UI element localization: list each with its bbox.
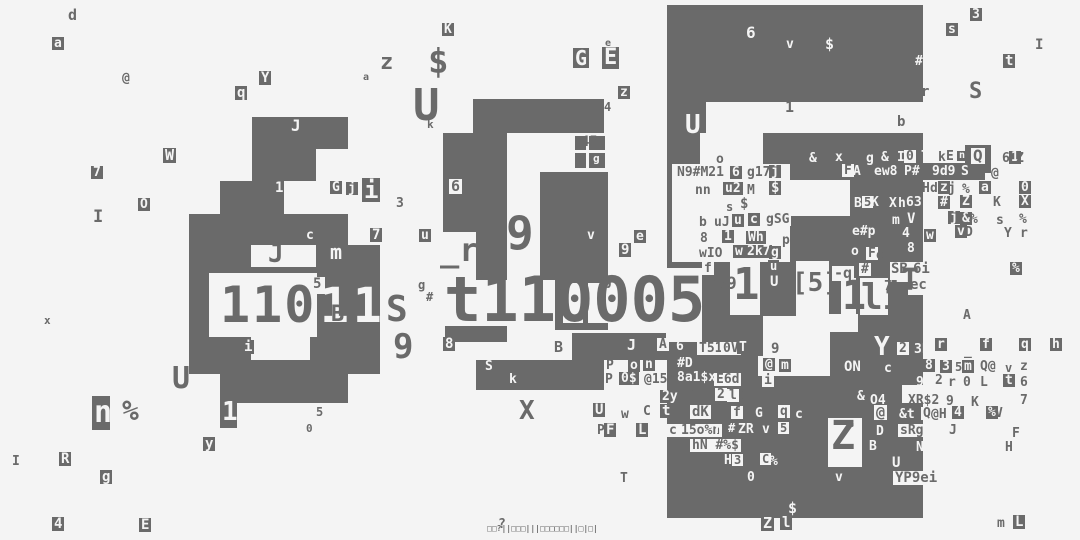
noise-char: c: [884, 362, 892, 375]
noise-char: 0: [747, 471, 755, 484]
noise-block: [572, 333, 667, 360]
noise-char: r: [935, 338, 947, 351]
noise-char: 7: [1020, 394, 1028, 407]
noise-char: 3E: [914, 343, 930, 356]
noise-char: k: [938, 151, 946, 164]
noise-char: 1: [733, 263, 760, 307]
noise-char: 8: [907, 242, 915, 255]
noise-char: @: [874, 405, 887, 420]
noise-char: h: [1050, 338, 1062, 351]
noise-char: z: [618, 86, 630, 99]
noise-char: J: [268, 241, 284, 267]
noise-char: O: [138, 198, 150, 211]
noise-char: w: [924, 229, 936, 242]
noise-char: 4M: [930, 425, 946, 438]
noise-char: K: [971, 396, 979, 409]
noise-char: e: [634, 230, 646, 243]
noise-char: L: [636, 423, 648, 437]
noise-art-canvas: da@YqW7OIxJ1Gji3za$KUkeGEz4Jcm7u110115BS…: [0, 0, 1080, 540]
noise-char: L: [1013, 515, 1025, 529]
noise-char: li: [861, 280, 904, 316]
noise-char: s: [996, 214, 1004, 227]
noise-char: W: [163, 148, 176, 163]
noise-char: Q@: [980, 360, 996, 373]
noise-char: N: [916, 441, 924, 454]
noise-char: E6d: [714, 373, 741, 386]
noise-char: F: [604, 423, 616, 437]
noise-char: x: [44, 315, 51, 326]
noise-char: J: [627, 338, 636, 353]
noise-char: F: [1012, 427, 1020, 440]
noise-char: K: [871, 196, 879, 209]
noise-char: l: [780, 516, 792, 530]
noise-char: _r: [440, 234, 479, 266]
noise-char: I: [93, 209, 103, 226]
noise-char: 6: [676, 340, 684, 353]
noise-char: y: [203, 437, 215, 451]
noise-char: 0: [306, 423, 313, 434]
noise-char: 1: [222, 399, 238, 425]
noise-char: %: [770, 455, 778, 468]
noise-char: v: [786, 38, 794, 51]
noise-char: C: [643, 405, 651, 418]
noise-char: t: [1003, 54, 1015, 68]
noise-char: J: [947, 424, 959, 437]
noise-char: j: [948, 211, 960, 224]
noise-char: @: [122, 72, 130, 85]
noise-char: ON: [844, 360, 861, 374]
noise-char: Z: [1016, 152, 1024, 165]
noise-char: i: [762, 374, 774, 387]
noise-char: g: [100, 470, 112, 484]
noise-char: g: [593, 153, 600, 164]
noise-char: h: [898, 197, 906, 210]
noise-char: v: [835, 471, 843, 484]
noise-char: 4: [604, 101, 611, 113]
noise-char: &: [809, 152, 817, 165]
noise-char: 9: [916, 376, 924, 389]
noise-char: j: [346, 182, 358, 195]
noise-char: K: [993, 196, 1001, 209]
noise-char: t110005: [444, 269, 705, 331]
noise-char: %: [122, 397, 139, 425]
noise-block: [252, 149, 316, 181]
noise-char: c: [667, 424, 679, 437]
noise-char: v: [762, 423, 770, 436]
noise-char: 0: [1019, 181, 1031, 194]
noise-char: S: [386, 292, 408, 328]
noise-char: a: [363, 73, 369, 83]
noise-char: 110: [220, 280, 316, 330]
noise-char: b: [897, 115, 905, 129]
noise-char: Z: [960, 195, 972, 208]
noise-char: 45: [581, 135, 598, 149]
noise-char: @15A: [644, 373, 675, 386]
noise-char: 4: [52, 517, 64, 531]
noise-char: g: [418, 279, 425, 291]
noise-char: 5: [316, 406, 323, 418]
noise-char: Wh: [746, 231, 766, 244]
noise-char: 5: [778, 422, 789, 434]
noise-block: [220, 374, 348, 403]
noise-char: #: [915, 55, 923, 68]
noise-char: 0: [904, 150, 916, 163]
noise-block: [189, 273, 209, 337]
noise-char: nn: [695, 184, 711, 197]
noise-char: t: [1003, 374, 1015, 387]
noise-char: g17: [747, 166, 770, 179]
noise-char: 9: [393, 330, 413, 364]
noise-char: u: [419, 229, 431, 242]
noise-char: #: [726, 422, 737, 434]
noise-block: [251, 360, 312, 374]
noise-char: r: [1020, 227, 1028, 240]
noise-cutout: [706, 102, 923, 133]
noise-char: 2: [933, 374, 945, 387]
noise-block: [575, 153, 586, 168]
noise-char: Q: [971, 148, 985, 164]
noise-char: 6: [1020, 376, 1028, 389]
noise-char: l: [727, 389, 739, 402]
noise-char: i: [242, 340, 254, 354]
noise-char: 1: [785, 100, 794, 115]
noise-char: n: [643, 358, 655, 371]
noise-char: H: [724, 454, 732, 467]
noise-char: A: [657, 338, 669, 351]
noise-char: 1: [722, 230, 734, 243]
noise-char: v: [1005, 362, 1012, 374]
noise-char: U: [892, 456, 900, 470]
noise-char: m: [330, 242, 342, 262]
noise-char: m: [892, 214, 900, 227]
noise-char: S: [961, 165, 969, 178]
noise-char: $: [428, 45, 448, 79]
noise-char: @: [991, 167, 999, 180]
noise-cutout: [251, 337, 310, 360]
noise-char: 8a1$x: [675, 371, 718, 384]
noise-char: m: [779, 359, 791, 372]
noise-char: 5: [313, 277, 321, 291]
noise-char: r: [921, 85, 929, 99]
noise-char: E: [139, 518, 151, 532]
noise-char: M: [747, 184, 755, 197]
noise-char: wIO: [699, 247, 722, 260]
noise-char: I: [741, 390, 749, 403]
noise-char: a: [979, 181, 991, 194]
noise-char: T: [921, 150, 929, 163]
noise-char: U: [770, 275, 778, 289]
noise-char: I: [1035, 38, 1043, 52]
noise-char: G: [848, 420, 854, 430]
noise-char: 7: [91, 166, 103, 179]
noise-char: 4: [902, 227, 910, 240]
noise-char: A: [963, 309, 971, 322]
noise-char: YP9ei: [893, 471, 939, 485]
noise-char: f: [731, 406, 743, 419]
noise-char: N9#M21: [677, 166, 724, 179]
noise-char: #: [426, 291, 433, 303]
noise-block: [476, 360, 604, 390]
noise-block: [473, 99, 604, 133]
noise-char: c: [795, 408, 803, 421]
noise-char: g: [866, 152, 874, 165]
noise-char: ec: [910, 278, 927, 292]
noise-char: 6: [449, 179, 462, 194]
noise-char: $: [825, 37, 834, 52]
noise-char: j: [948, 182, 956, 195]
noise-char: t: [660, 404, 672, 418]
noise-char: U: [172, 364, 190, 394]
noise-char: #: [938, 196, 950, 209]
noise-char: A: [853, 165, 861, 178]
noise-char: Y: [874, 334, 890, 360]
noise-char: E: [946, 150, 954, 163]
noise-char: 6: [730, 166, 742, 179]
noise-block: [360, 360, 379, 373]
noise-char: o: [851, 245, 859, 258]
noise-char: e#p: [852, 225, 875, 238]
noise-char: s: [946, 23, 958, 36]
noise-char: Y: [259, 71, 271, 85]
noise-char: #D: [675, 357, 695, 370]
noise-char: 2: [715, 388, 727, 401]
noise-char: J: [291, 118, 301, 134]
noise-char: n: [957, 151, 967, 161]
noise-char: 4: [952, 406, 964, 419]
noise-char: &t: [899, 408, 915, 421]
noise-char: d: [68, 8, 77, 23]
noise-char: G: [573, 48, 589, 68]
noise-char: W: [840, 197, 848, 210]
noise-char: K: [442, 23, 454, 36]
noise-char: D: [965, 226, 973, 239]
noise-char: 0$: [619, 372, 639, 385]
noise-char: 3: [970, 8, 982, 21]
noise-char: 7: [370, 228, 382, 242]
noise-char: 2: [897, 342, 909, 355]
noise-char: $: [740, 197, 748, 211]
noise-char: B: [854, 197, 862, 210]
noise-char: q: [235, 86, 247, 100]
noise-char: X: [519, 398, 535, 424]
noise-char: 9: [619, 243, 631, 257]
noise-char: o: [876, 249, 884, 262]
noise-char: 63: [906, 196, 922, 209]
noise-char: T: [737, 341, 749, 354]
noise-char: m: [962, 360, 974, 373]
noise-char: 9: [771, 342, 779, 356]
noise-char: ?: [498, 518, 506, 531]
noise-char: ew8: [874, 165, 897, 178]
noise-char: B: [554, 340, 563, 355]
noise-char: 8: [443, 337, 455, 351]
noise-char: _: [964, 345, 972, 358]
noise-char: x: [835, 151, 843, 164]
noise-char: ZR: [738, 423, 754, 436]
noise-char: B: [331, 304, 344, 326]
noise-char: 1: [275, 181, 283, 195]
noise-char: v: [585, 229, 597, 242]
noise-char: L: [980, 376, 988, 389]
noise-char: P#: [904, 165, 920, 178]
noise-char: m: [997, 517, 1005, 530]
noise-char: 3: [396, 197, 404, 210]
noise-char: k: [509, 373, 517, 386]
noise-char: 2y: [660, 390, 680, 403]
noise-char: u: [732, 214, 744, 227]
noise-char: w: [621, 408, 629, 421]
noise-char: %: [1019, 213, 1027, 226]
noise-char: f: [980, 338, 992, 351]
noise-char: $: [769, 181, 781, 195]
noise-char: u: [768, 260, 779, 272]
noise-char: P: [605, 373, 613, 386]
noise-char: Z: [761, 516, 774, 531]
noise-char: 8: [923, 359, 935, 372]
noise-char: 6: [746, 25, 756, 41]
noise-char: 9d9: [932, 165, 955, 178]
noise-char: D: [876, 425, 884, 438]
noise-char: dK: [690, 405, 711, 419]
noise-char: g: [769, 246, 781, 259]
noise-char: r: [948, 376, 956, 389]
noise-char: a: [52, 37, 64, 50]
noise-char: U: [685, 112, 701, 138]
noise-char: @: [763, 358, 775, 371]
noise-char: S: [485, 360, 493, 373]
noise-char: c: [748, 213, 760, 226]
noise-char: %: [1010, 262, 1022, 275]
noise-char: w: [733, 245, 745, 258]
noise-char: k: [427, 119, 434, 130]
noise-char: 3: [940, 360, 952, 373]
noise-char: q: [778, 405, 790, 418]
noise-char: 3: [732, 454, 743, 466]
noise-char: T: [620, 472, 628, 485]
noise-char: G: [330, 181, 342, 194]
noise-char: q: [1019, 338, 1031, 351]
noise-char: i: [362, 178, 380, 202]
noise-char: @H: [931, 408, 947, 421]
noise-char: f: [666, 358, 674, 371]
noise-char: sRg: [898, 424, 925, 437]
noise-char: S: [969, 81, 982, 103]
noise-char: v: [100, 423, 106, 433]
noise-char: H: [1005, 441, 1013, 454]
noise-char: j: [769, 165, 781, 178]
noise-char: &: [881, 151, 889, 164]
noise-char: 8: [700, 232, 708, 245]
noise-char: X: [889, 197, 897, 210]
noise-char: p: [782, 234, 790, 247]
noise-char: d: [930, 182, 938, 195]
noise-char: 0: [963, 376, 971, 389]
noise-char: $: [788, 501, 797, 516]
noise-char: G: [755, 407, 763, 420]
noise-char: b: [603, 277, 611, 291]
noise-char: E: [602, 47, 619, 69]
noise-char: uJ: [714, 216, 730, 229]
noise-char: s: [726, 201, 733, 213]
noise-char: 11: [320, 282, 386, 330]
noise-char: b: [699, 216, 707, 229]
noise-char: &: [857, 390, 865, 403]
noise-char: c: [306, 229, 314, 242]
noise-char: z: [380, 52, 393, 74]
noise-char: U: [593, 403, 605, 417]
noise-char: H: [922, 182, 930, 195]
noise-char: hN #%$: [690, 439, 741, 452]
noise-char: R: [59, 452, 71, 466]
noise-char: Y: [1004, 227, 1012, 240]
noise-char: X: [1019, 195, 1031, 208]
noise-char: 9: [506, 210, 534, 256]
noise-char: V: [907, 212, 915, 226]
noise-char: I: [12, 455, 20, 468]
noise-char: z: [1020, 360, 1028, 373]
noise-char: n: [715, 423, 723, 436]
noise-char: P: [606, 359, 614, 372]
noise-char: u2: [723, 182, 743, 195]
noise-char: gSG: [764, 213, 791, 226]
noise-char: 7: [884, 280, 892, 293]
noise-char: V: [995, 407, 1003, 420]
noise-char: B: [869, 440, 877, 453]
